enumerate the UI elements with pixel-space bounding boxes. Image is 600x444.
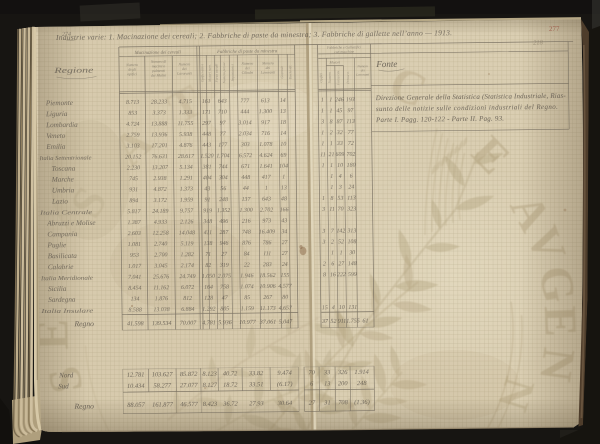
- svg-text:(1.36): (1.36): [354, 399, 370, 406]
- svg-text:1: 1: [321, 108, 324, 114]
- svg-text:Opifici: Opifici: [319, 73, 323, 83]
- svg-text:2.174: 2.174: [181, 263, 194, 269]
- svg-text:24: 24: [282, 262, 288, 268]
- svg-text:Forza cav.: Forza cav.: [336, 70, 340, 86]
- svg-text:1: 1: [330, 174, 333, 180]
- svg-text:Sardegna: Sardegna: [48, 296, 76, 304]
- svg-text:745: 745: [129, 176, 138, 182]
- svg-text:Numero: Numero: [261, 61, 274, 65]
- svg-text:Regione: Regione: [53, 66, 94, 76]
- svg-text:14: 14: [280, 131, 286, 137]
- svg-text:1.387: 1.387: [127, 220, 141, 226]
- svg-text:28.233: 28.233: [151, 99, 167, 105]
- svg-text:313: 313: [346, 228, 356, 234]
- svg-text:Fonte: Fonte: [375, 59, 397, 69]
- svg-text:15: 15: [322, 305, 328, 311]
- svg-text:76.631: 76.631: [152, 154, 168, 160]
- svg-text:4: 4: [339, 174, 342, 180]
- svg-text:58.277: 58.277: [153, 382, 171, 389]
- svg-text:1.641: 1.641: [259, 164, 272, 170]
- svg-text:31: 31: [323, 399, 330, 406]
- svg-text:267: 267: [263, 295, 273, 301]
- svg-text:4.624: 4.624: [259, 153, 272, 159]
- svg-text:138: 138: [204, 241, 213, 247]
- svg-text:443: 443: [202, 143, 211, 149]
- svg-text:Numero presse: Numero presse: [222, 62, 226, 84]
- svg-text:Umbria: Umbria: [52, 186, 75, 194]
- svg-text:2.740: 2.740: [154, 242, 167, 248]
- svg-text:2.230: 2.230: [127, 165, 140, 171]
- svg-text:216: 216: [242, 219, 251, 225]
- svg-text:1.914: 1.914: [354, 369, 369, 376]
- svg-text:24.189: 24.189: [152, 209, 168, 215]
- svg-text:2.603: 2.603: [128, 231, 141, 237]
- svg-text:3.014: 3.014: [237, 120, 251, 126]
- svg-text:27.077: 27.077: [180, 382, 198, 389]
- svg-text:708: 708: [338, 399, 348, 406]
- svg-text:Sud: Sud: [58, 382, 69, 390]
- svg-text:46.577: 46.577: [180, 401, 198, 408]
- svg-text:448: 448: [241, 175, 250, 181]
- svg-text:71: 71: [205, 252, 211, 258]
- svg-text:1: 1: [322, 163, 325, 169]
- svg-text:degli: degli: [128, 68, 135, 72]
- svg-text:27: 27: [309, 400, 316, 407]
- svg-text:6: 6: [331, 261, 334, 267]
- svg-text:2.938: 2.938: [153, 176, 166, 182]
- svg-text:27.93: 27.93: [249, 400, 263, 407]
- svg-text:139.534: 139.534: [152, 320, 172, 327]
- svg-text:177: 177: [218, 142, 228, 148]
- svg-text:448: 448: [202, 132, 211, 138]
- svg-text:411: 411: [204, 230, 213, 236]
- svg-text:43: 43: [204, 186, 210, 192]
- svg-text:11.162: 11.162: [153, 285, 169, 291]
- svg-text:Italia Centrale: Italia Centrale: [39, 210, 93, 217]
- svg-text:13.888: 13.888: [151, 121, 167, 127]
- svg-text:1.704: 1.704: [216, 153, 229, 159]
- svg-text:9.757: 9.757: [180, 208, 194, 214]
- svg-text:4.724: 4.724: [126, 122, 139, 128]
- svg-text:Abruzzi e Molise: Abruzzi e Molise: [46, 219, 96, 228]
- svg-text:137: 137: [242, 197, 252, 203]
- svg-text:10: 10: [337, 163, 343, 169]
- svg-text:10.977: 10.977: [239, 320, 257, 326]
- svg-text:44: 44: [243, 186, 249, 192]
- svg-text:(6.17): (6.17): [277, 381, 293, 388]
- svg-text:1.876: 1.876: [155, 296, 168, 302]
- svg-text:3: 3: [321, 229, 325, 235]
- svg-text:Basilicata: Basilicata: [48, 252, 78, 260]
- svg-text:12.781: 12.781: [127, 372, 145, 379]
- svg-text:911: 911: [338, 319, 347, 325]
- svg-text:496: 496: [219, 219, 228, 225]
- svg-text:303: 303: [240, 142, 250, 148]
- svg-text:917: 917: [261, 120, 271, 126]
- svg-text:70: 70: [338, 207, 344, 213]
- svg-text:744: 744: [219, 164, 228, 170]
- svg-text:4.933: 4.933: [154, 220, 167, 226]
- svg-text:5.936: 5.936: [218, 320, 232, 326]
- svg-text:32: 32: [336, 130, 343, 136]
- svg-text:148: 148: [348, 261, 357, 267]
- svg-text:14.048: 14.048: [179, 230, 195, 236]
- svg-text:2: 2: [331, 239, 334, 245]
- svg-text:8.713: 8.713: [126, 100, 139, 106]
- svg-text:812: 812: [183, 296, 192, 302]
- svg-text:131: 131: [348, 305, 357, 311]
- svg-text:161.877: 161.877: [152, 401, 174, 408]
- svg-text:111: 111: [263, 251, 271, 257]
- svg-text:1: 1: [321, 98, 324, 104]
- svg-text:Emilia: Emilia: [45, 143, 66, 151]
- svg-text:164: 164: [204, 285, 213, 291]
- svg-text:287: 287: [219, 230, 229, 236]
- svg-text:4.657: 4.657: [279, 306, 293, 312]
- svg-text:6.572: 6.572: [239, 153, 252, 159]
- svg-text:1.159: 1.159: [241, 306, 254, 312]
- svg-text:3.103: 3.103: [125, 143, 139, 149]
- svg-text:5.938: 5.938: [179, 132, 192, 138]
- svg-text:8.423: 8.423: [203, 401, 217, 408]
- svg-text:142: 142: [336, 228, 345, 234]
- svg-text:946: 946: [220, 241, 229, 247]
- svg-text:5.817: 5.817: [127, 209, 141, 215]
- svg-text:10: 10: [280, 142, 286, 148]
- svg-text:1: 1: [330, 163, 333, 169]
- svg-text:1.017: 1.017: [128, 264, 142, 270]
- svg-text:61: 61: [362, 318, 368, 324]
- svg-text:Puglie: Puglie: [46, 241, 67, 249]
- svg-text:40.72: 40.72: [223, 370, 238, 377]
- svg-text:1: 1: [265, 186, 268, 192]
- svg-text:24.749: 24.749: [179, 274, 195, 280]
- svg-text:128: 128: [204, 296, 213, 302]
- svg-text:8: 8: [330, 119, 333, 125]
- svg-text:4.577: 4.577: [278, 284, 292, 290]
- svg-text:13: 13: [281, 185, 287, 191]
- svg-text:613: 613: [261, 98, 270, 104]
- svg-text:macine o: macine o: [152, 64, 166, 68]
- svg-text:786: 786: [263, 240, 272, 246]
- svg-text:33.82: 33.82: [248, 370, 264, 377]
- svg-text:348: 348: [202, 219, 212, 225]
- svg-text:9.474: 9.474: [277, 370, 292, 377]
- svg-text:84: 84: [244, 251, 250, 257]
- svg-text:20.152: 20.152: [125, 154, 141, 160]
- svg-text:404: 404: [203, 175, 212, 181]
- svg-text:Lavoranti: Lavoranti: [355, 73, 369, 77]
- svg-text:4: 4: [332, 305, 335, 311]
- svg-text:8.588: 8.588: [128, 307, 141, 313]
- svg-text:200: 200: [338, 380, 348, 387]
- svg-text:Impastatrici: Impastatrici: [231, 64, 235, 82]
- svg-text:113: 113: [346, 119, 355, 125]
- svg-text:1.520: 1.520: [200, 154, 213, 160]
- svg-text:1.373: 1.373: [180, 187, 193, 193]
- svg-text:56: 56: [220, 186, 226, 192]
- svg-text:702: 702: [346, 152, 355, 158]
- svg-text:33: 33: [336, 141, 343, 147]
- svg-text:643: 643: [262, 197, 271, 203]
- svg-text:609: 609: [335, 152, 344, 158]
- svg-text:10.434: 10.434: [127, 383, 145, 390]
- svg-text:643: 643: [218, 99, 227, 105]
- svg-text:18: 18: [280, 120, 286, 126]
- svg-text:48: 48: [281, 196, 287, 202]
- svg-text:10.906: 10.906: [259, 284, 275, 290]
- svg-text:2.126: 2.126: [180, 219, 193, 225]
- svg-text:1.292: 1.292: [202, 307, 215, 313]
- svg-text:Nord: Nord: [58, 371, 74, 379]
- svg-text:5.047: 5.047: [279, 318, 294, 325]
- svg-text:4.715: 4.715: [179, 99, 192, 105]
- svg-text:85: 85: [244, 295, 250, 301]
- svg-text:16: 16: [330, 272, 336, 278]
- svg-text:Numero di: Numero di: [150, 60, 167, 64]
- svg-text:716: 716: [261, 131, 270, 137]
- svg-text:13: 13: [280, 109, 286, 115]
- svg-text:193: 193: [346, 97, 355, 103]
- svg-text:Numero: Numero: [125, 63, 138, 67]
- svg-text:Piemonte: Piemonte: [45, 99, 74, 107]
- svg-text:37.061: 37.061: [259, 320, 277, 326]
- svg-text:1: 1: [330, 141, 333, 147]
- svg-text:Regno: Regno: [73, 319, 94, 328]
- svg-text:1.333: 1.333: [179, 110, 192, 116]
- svg-text:2.702: 2.702: [260, 207, 273, 213]
- svg-text:1.300: 1.300: [259, 109, 272, 115]
- svg-text:5.134: 5.134: [179, 165, 192, 171]
- svg-text:Regno: Regno: [73, 402, 94, 411]
- svg-text:21: 21: [328, 152, 334, 158]
- svg-text:671: 671: [241, 164, 250, 170]
- svg-text:417: 417: [262, 175, 272, 181]
- svg-text:2.759: 2.759: [126, 133, 139, 139]
- svg-text:1.352: 1.352: [217, 208, 230, 214]
- svg-text:30: 30: [348, 250, 355, 256]
- svg-text:1.300: 1.300: [239, 208, 252, 214]
- svg-text:11: 11: [329, 207, 335, 213]
- svg-text:13.936: 13.936: [151, 132, 167, 138]
- svg-text:25.676: 25.676: [153, 274, 169, 280]
- svg-text:4.781: 4.781: [202, 319, 216, 326]
- svg-text:1.282: 1.282: [180, 252, 193, 258]
- svg-text:Italia Settentrionale: Italia Settentrionale: [38, 155, 91, 162]
- svg-text:283: 283: [263, 262, 272, 268]
- svg-text:1: 1: [340, 250, 343, 256]
- svg-text:1: 1: [321, 141, 324, 147]
- svg-text:8: 8: [323, 272, 326, 278]
- svg-text:748: 748: [242, 230, 251, 236]
- svg-text:3: 3: [322, 240, 326, 246]
- svg-text:Lombardia: Lombardia: [45, 121, 78, 129]
- svg-text:222: 222: [337, 272, 346, 278]
- svg-text:853: 853: [128, 111, 137, 117]
- svg-text:13.038: 13.038: [153, 307, 169, 313]
- svg-text:3.172: 3.172: [153, 198, 167, 204]
- svg-text:11.173: 11.173: [260, 306, 276, 312]
- svg-text:8.123: 8.123: [202, 371, 216, 378]
- svg-text:69: 69: [280, 153, 286, 159]
- svg-text:70: 70: [308, 369, 315, 376]
- svg-text:277: 277: [549, 25, 560, 33]
- svg-text:43: 43: [281, 218, 287, 224]
- svg-text:134: 134: [131, 296, 140, 302]
- svg-text:5.119: 5.119: [181, 241, 194, 247]
- svg-text:Lavoranti: Lavoranti: [176, 72, 192, 76]
- svg-text:Forza cavalli: Forza cavalli: [215, 64, 219, 84]
- svg-text:6.072: 6.072: [181, 285, 194, 291]
- svg-text:171: 171: [202, 110, 211, 116]
- svg-text:Opifici attivi: Opifici attivi: [200, 64, 204, 82]
- svg-text:14: 14: [280, 98, 286, 104]
- svg-text:919: 919: [203, 208, 212, 214]
- svg-text:37: 37: [321, 319, 329, 325]
- svg-text:1.946: 1.946: [240, 273, 253, 279]
- svg-text:11.755: 11.755: [178, 121, 194, 127]
- svg-text:Motori: Motori: [329, 60, 341, 64]
- svg-text:155: 155: [280, 273, 289, 279]
- svg-text:30.64: 30.64: [277, 400, 293, 407]
- svg-text:24: 24: [348, 185, 354, 191]
- svg-text:opifici: opifici: [127, 72, 136, 76]
- svg-text:Fabbriche di paste da minestra: Fabbriche di paste da minestra: [216, 49, 278, 55]
- svg-text:2.075: 2.075: [218, 274, 231, 280]
- svg-text:Lazio: Lazio: [51, 197, 68, 205]
- svg-text:Marche: Marche: [51, 175, 75, 183]
- svg-text:1.291: 1.291: [180, 176, 193, 182]
- svg-text:82: 82: [205, 263, 211, 269]
- svg-text:108: 108: [348, 239, 357, 245]
- svg-text:Macinazione dei cereali: Macinazione dei cereali: [134, 50, 182, 56]
- svg-text:1.081: 1.081: [128, 242, 141, 248]
- svg-text:248: 248: [357, 380, 367, 387]
- svg-text:Torchi idr.: Torchi idr.: [288, 65, 292, 80]
- svg-text:1: 1: [329, 108, 332, 114]
- svg-text:1: 1: [282, 174, 285, 180]
- svg-text:246: 246: [335, 97, 344, 103]
- svg-text:34: 34: [280, 229, 287, 235]
- svg-text:3: 3: [338, 185, 342, 191]
- svg-text:180: 180: [347, 163, 356, 169]
- svg-text:381: 381: [202, 164, 212, 170]
- svg-text:45: 45: [336, 108, 342, 114]
- svg-text:2.034: 2.034: [239, 131, 252, 137]
- svg-text:18.562: 18.562: [259, 273, 275, 279]
- svg-text:931: 931: [129, 187, 138, 193]
- svg-text:304: 304: [218, 175, 228, 181]
- svg-text:4.876: 4.876: [179, 143, 192, 149]
- svg-text:710: 710: [218, 110, 227, 116]
- svg-text:6.884: 6.884: [181, 307, 194, 313]
- svg-text:Numero: Numero: [328, 72, 332, 84]
- svg-text:Campania: Campania: [47, 230, 77, 238]
- svg-text:8.454: 8.454: [128, 286, 141, 292]
- svg-text:104: 104: [279, 164, 288, 170]
- svg-text:22: 22: [244, 262, 250, 268]
- svg-text:444: 444: [240, 109, 249, 115]
- svg-text:218: 218: [533, 40, 544, 47]
- svg-text:326: 326: [337, 369, 348, 376]
- svg-text:dei Mulini: dei Mulini: [151, 73, 166, 77]
- svg-text:Numero: Numero: [240, 62, 253, 66]
- svg-text:3: 3: [320, 119, 324, 125]
- svg-text:Presse n.: Presse n.: [346, 71, 350, 85]
- svg-text:88.057: 88.057: [127, 402, 145, 409]
- svg-text:91: 91: [205, 197, 211, 203]
- svg-text:2.700: 2.700: [154, 252, 167, 258]
- svg-text:1: 1: [330, 185, 333, 191]
- svg-text:Sicilia: Sicilia: [48, 285, 67, 293]
- svg-text:Motori num.: Motori num.: [208, 64, 212, 83]
- svg-text:36.72: 36.72: [222, 401, 238, 408]
- svg-text:dei: dei: [245, 66, 250, 70]
- svg-text:16.409: 16.409: [259, 229, 275, 235]
- svg-text:1: 1: [322, 196, 325, 202]
- svg-text:dei: dei: [266, 66, 271, 70]
- svg-text:Numero: Numero: [177, 62, 190, 66]
- svg-text:6: 6: [350, 174, 353, 180]
- svg-text:Parte I. Pagg. 120-122 - Parte: Parte I. Pagg. 120-122 - Parte II. Pag. …: [375, 114, 504, 124]
- svg-text:1.755: 1.755: [346, 319, 360, 325]
- svg-text:con macchine: con macchine: [334, 50, 354, 54]
- svg-text:7.041: 7.041: [128, 275, 141, 281]
- svg-text:1.959: 1.959: [180, 198, 193, 204]
- svg-text:8: 8: [330, 196, 333, 202]
- svg-text:1: 1: [331, 250, 334, 256]
- svg-text:3.045: 3.045: [153, 263, 167, 269]
- svg-text:Gramole: Gramole: [280, 66, 284, 79]
- svg-text:274: 274: [62, 31, 71, 38]
- svg-text:1: 1: [321, 130, 324, 136]
- svg-text:13.207: 13.207: [152, 165, 169, 171]
- svg-text:53: 53: [338, 196, 344, 202]
- svg-text:28.617: 28.617: [178, 154, 195, 160]
- svg-text:13: 13: [324, 380, 330, 387]
- svg-text:2: 2: [323, 261, 326, 267]
- svg-text:Lavoranti: Lavoranti: [260, 70, 276, 74]
- svg-text:Italia Meridionale: Italia Meridionale: [40, 276, 94, 283]
- svg-text:894: 894: [129, 198, 138, 204]
- svg-text:297: 297: [202, 121, 212, 127]
- svg-text:103.627: 103.627: [152, 371, 174, 378]
- svg-text:Italia Insulare: Italia Insulare: [40, 308, 94, 315]
- svg-text:113: 113: [347, 196, 356, 202]
- svg-text:973: 973: [262, 218, 271, 224]
- svg-text:1.074: 1.074: [240, 284, 253, 290]
- svg-text:80: 80: [282, 295, 288, 301]
- svg-text:Calabrie: Calabrie: [48, 263, 74, 271]
- svg-text:33: 33: [323, 369, 330, 376]
- svg-text:18.72: 18.72: [223, 382, 238, 389]
- svg-text:palmenti: palmenti: [151, 69, 165, 73]
- svg-text:11: 11: [320, 152, 326, 158]
- svg-text:3: 3: [321, 207, 325, 213]
- svg-text:17.201: 17.201: [151, 143, 167, 149]
- svg-text:2: 2: [330, 130, 333, 136]
- svg-text:Liguria: Liguria: [45, 110, 68, 118]
- svg-text:52: 52: [330, 319, 336, 325]
- svg-text:161: 161: [202, 99, 211, 105]
- svg-text:52: 52: [338, 239, 344, 245]
- svg-text:12.258: 12.258: [152, 231, 168, 237]
- svg-text:4.872: 4.872: [153, 187, 166, 193]
- svg-text:85.872: 85.872: [180, 371, 198, 378]
- svg-text:1.050: 1.050: [202, 274, 215, 280]
- svg-text:3.373: 3.373: [151, 110, 165, 116]
- svg-text:Cilindri: Cilindri: [242, 71, 254, 75]
